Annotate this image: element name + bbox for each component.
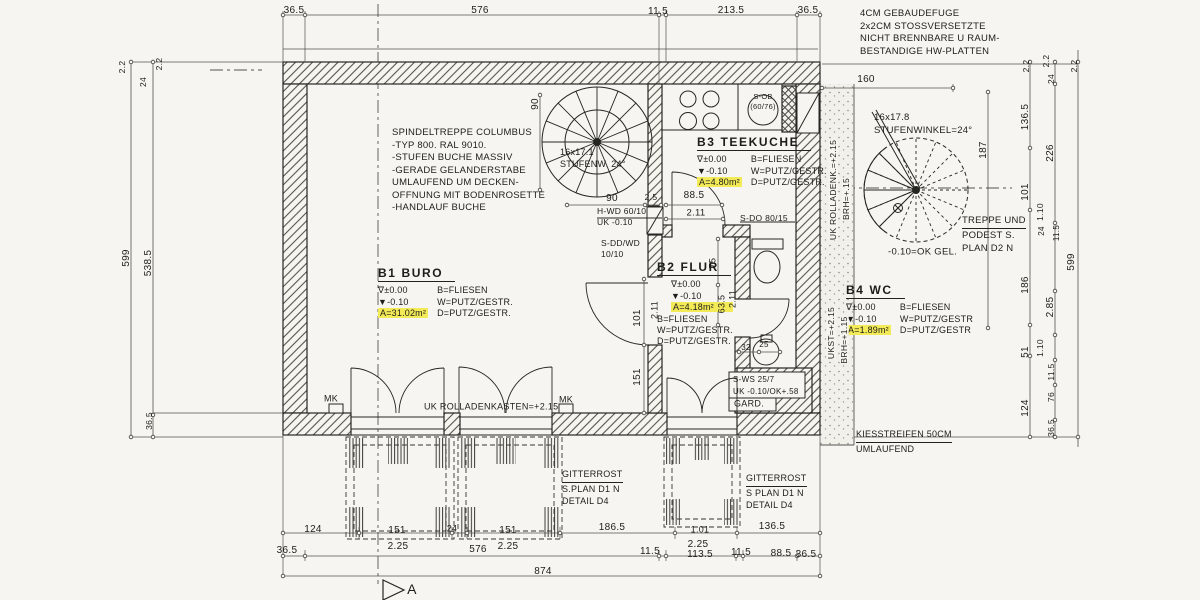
note-stair2-steps: 16x17.8 STUFENWINKEL=24° — [874, 112, 972, 137]
dim-label: 186.5 — [599, 523, 626, 533]
room-info-b3: B3 TEEKUCHE ∇±0.00 B=FLIESEN ▼-0.10 W=PU… — [697, 133, 827, 187]
rolladenkasten-note: UK ROLLADENKASTEN=+2.15 — [424, 403, 558, 412]
dim-label: 25 — [759, 341, 769, 349]
dim-label: 11.5 — [731, 548, 751, 558]
dim-label: 76 — [1047, 392, 1056, 402]
room-floor: B=FLIESEN — [751, 154, 827, 165]
dim-label: 2.25 — [388, 542, 409, 552]
note-gitterrost-1: GITTERROSTS.PLAN D1 N DETAIL D4 — [562, 457, 623, 519]
dim-label: 101 — [1021, 183, 1031, 201]
dim-label: 101 — [633, 309, 643, 327]
dim-label: 11.5 — [1047, 363, 1056, 380]
dim-label: 124 — [1021, 399, 1031, 417]
dim-label: 24 — [1038, 226, 1046, 236]
dim-label: 51 — [1021, 346, 1031, 358]
dim-label: 32 — [741, 344, 751, 352]
dim-label: 2.2 — [1042, 55, 1051, 68]
dim-label: 538.5 — [144, 250, 154, 277]
dim-label: 36.5 — [277, 546, 298, 556]
dim-label: 151 — [499, 526, 517, 536]
note-body: PODEST S. PLAN D2 N — [962, 230, 1026, 255]
dim-label: 2.11 — [651, 301, 660, 319]
floor-plan-scan: 4CM GEBAUDEFUGE 2x2CM STOSSVERSETZTE NIC… — [0, 0, 1200, 600]
dim-label: 151 — [633, 368, 643, 386]
dim-label: 186 — [1021, 276, 1031, 294]
room-level-minus: ▼-0.10 — [378, 297, 428, 307]
dim-label: 136.5 — [759, 522, 786, 532]
dim-label: 599 — [1067, 253, 1077, 271]
note-treppe-podest: TREPPE UNDPODEST S. PLAN D2 N — [962, 202, 1026, 268]
note-title: TREPPE UND — [962, 215, 1026, 230]
note-title: GITTERROST — [562, 469, 623, 483]
dim-label: 1.01 — [691, 526, 710, 535]
room-level-zero: ∇±0.00 — [378, 285, 428, 296]
dim-label: 599 — [122, 249, 132, 267]
dim-label: 874 — [534, 567, 552, 577]
dim-label: 2.2 — [155, 58, 164, 71]
ukst-note: UKST=+2.15 — [827, 307, 836, 359]
dim-label: 226 — [1046, 144, 1056, 162]
room-ceiling: D=PUTZ/GESTR — [900, 325, 973, 335]
note-building-joint: 4CM GEBAUDEFUGE 2x2CM STOSSVERSETZTE NIC… — [860, 8, 1000, 58]
dim-label: 576 — [471, 6, 489, 16]
room-walls: W=PUTZ/GESTR. — [657, 325, 733, 335]
room-floor: B=FLIESEN — [437, 285, 513, 296]
note-sink-sob: S-OB (60/76) — [750, 92, 776, 112]
dim-label: 2.2 — [1022, 60, 1031, 73]
room-name-b4: B4 WC — [846, 283, 905, 299]
room-area: A=4.80m² — [697, 177, 742, 187]
room-name-b1: B1 BURO — [378, 266, 455, 282]
room-level-zero: ∇±0.00 — [846, 302, 891, 313]
room-info-b1: B1 BURO ∇±0.00 B=FLIESEN ▼-0.10 W=PUTZ/G… — [378, 264, 513, 318]
dim-label: 1.10 — [1036, 339, 1045, 357]
dim-label: 90 — [606, 194, 618, 204]
dim-label: 90 — [531, 98, 541, 110]
lintel-note: S-DO 80/15 — [740, 214, 788, 223]
dim-label: 63.5 — [718, 295, 727, 314]
dim-label: 2.2 — [1070, 60, 1079, 73]
note-hwd-duct: H-WD 60/10 UK -0.10 — [597, 206, 646, 228]
dim-label: 160 — [857, 75, 875, 85]
room-level-minus: ▼-0.10 — [697, 166, 742, 176]
dim-label: 576 — [469, 545, 487, 555]
dim-label: 2.85 — [1046, 297, 1056, 318]
dim-label: 88.5 — [771, 549, 792, 559]
dim-label: 11.5 — [1053, 225, 1061, 241]
room-ceiling: D=PUTZ/GESTR. — [437, 308, 513, 318]
note-title: KIESSTREIFEN 50CM — [856, 429, 952, 443]
brh-note: BRH=+.15 — [842, 178, 851, 220]
dim-label: 24 — [139, 77, 148, 87]
room-area: A=1.89m² — [846, 325, 891, 335]
note-body: UMLAUFEND — [856, 444, 952, 456]
dim-label: 2.11 — [729, 290, 738, 308]
dim-label: 75 — [709, 258, 718, 269]
level-note: -0.10=OK GEL. — [888, 247, 957, 257]
room-walls: W=PUTZ/GESTR — [900, 314, 973, 324]
dim-label: 151 — [388, 526, 406, 536]
mk-label: MK — [559, 396, 573, 405]
dim-label: 124 — [304, 525, 322, 535]
room-level-minus: ▼-0.10 — [846, 314, 891, 324]
room-level-zero: ∇±0.00 — [697, 154, 742, 165]
note-sddwd-duct: S-DD/WD 10/10 — [601, 238, 640, 260]
room-area: A=31.02m² — [378, 308, 428, 318]
note-gitterrost-2: GITTERROSTS PLAN D1 N DETAIL D4 — [746, 461, 807, 523]
dim-label: 2.5 — [645, 193, 658, 202]
brh-note: BRH=+1.15 — [840, 316, 849, 363]
level-note: UK -0.10/OK+.58 — [733, 388, 799, 396]
note-title: GITTERROST — [746, 473, 807, 487]
note-stair1-steps: 16x17.1 STUFENW. 24° — [560, 147, 626, 171]
note-spiral-stair-spec: SPINDELTREPPE COLUMBUS -TYP 800. RAL 901… — [392, 127, 545, 215]
room-info-b4: B4 WC ∇±0.00 B=FLIESEN ▼-0.10 W=PUTZ/GES… — [846, 281, 973, 335]
dim-label: 36.5 — [796, 550, 817, 560]
dim-label: 136.5 — [1021, 104, 1031, 131]
dim-label: 36.5 — [284, 6, 305, 16]
dim-label: 1.10 — [1036, 203, 1045, 221]
lintel-note: S-WS 25/7 — [733, 376, 774, 384]
annotation-layer: 4CM GEBAUDEFUGE 2x2CM STOSSVERSETZTE NIC… — [0, 0, 1200, 600]
dim-label: 213.5 — [718, 6, 745, 16]
room-walls: W=PUTZ/GESTR. — [751, 166, 827, 176]
dim-label: 24 — [1047, 74, 1056, 84]
dim-label: 113.5 — [687, 550, 713, 560]
room-walls: W=PUTZ/GESTR. — [437, 297, 513, 307]
room-ceiling: D=PUTZ/GESTR. — [657, 336, 733, 346]
dim-label: 36.5 — [1047, 419, 1056, 437]
dim-label: 36.5 — [145, 412, 154, 430]
room-level-zero: ∇±0.00 — [671, 279, 733, 290]
note-body: S PLAN D1 N DETAIL D4 — [746, 488, 807, 512]
dim-label: 36.5 — [798, 6, 819, 16]
room-floor: B=FLIESEN — [900, 302, 973, 313]
dim-label: 2.25 — [498, 542, 519, 552]
room-floor: B=FLIESEN — [657, 314, 733, 324]
dim-label: 2.2 — [118, 61, 127, 74]
mk-label: MK — [324, 395, 338, 404]
dim-label: 187 — [979, 141, 989, 159]
dim-label: 11.5 — [648, 7, 668, 17]
room-name-b2: B2 FLUR — [657, 260, 731, 276]
dim-label: 11.5 — [640, 547, 660, 557]
rolladenk-note: UK ROLLADENK.=+2.15 — [829, 140, 838, 240]
note-kiesstreifen: KIESSTREIFEN 50CMUMLAUFEND — [856, 417, 952, 468]
section-letter: A — [407, 582, 417, 596]
room-ceiling: D=PUTZ/GESTR. — [751, 177, 827, 187]
dim-label: 88.5 — [684, 191, 705, 201]
dim-label: 24 — [447, 525, 458, 534]
room-name-b3: B3 TEEKUCHE — [697, 135, 811, 151]
dim-label: 2.11 — [687, 208, 706, 218]
garderobe-label: GARD. — [734, 400, 764, 409]
note-body: S.PLAN D1 N DETAIL D4 — [562, 484, 623, 508]
